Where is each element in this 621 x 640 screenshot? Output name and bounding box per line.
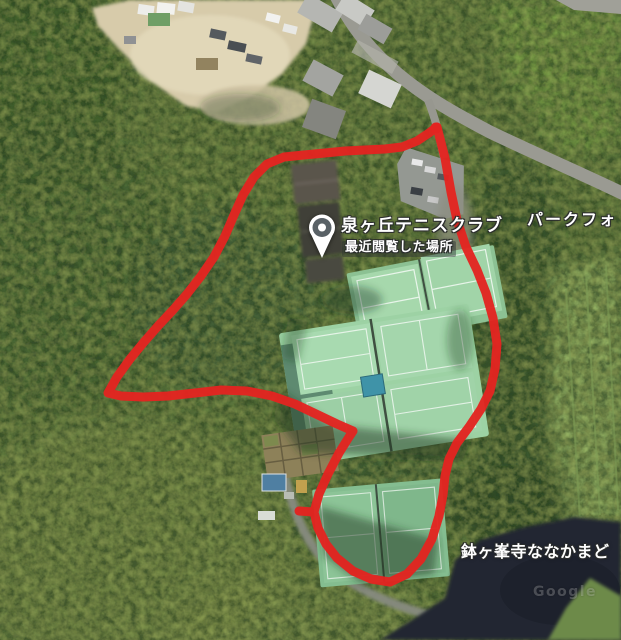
map-canvas[interactable]: 泉ヶ丘テニスクラブ 最近閲覧した場所 パークフォ 鉢ヶ峯寺ななかまど Googl… xyxy=(0,0,621,640)
place-status-label: 最近閲覧した場所 xyxy=(342,241,456,257)
place-name-label[interactable]: 泉ヶ丘テニスクラブ xyxy=(341,217,503,237)
area-label-temple[interactable]: 鉢ヶ峯寺ななかまど xyxy=(461,543,610,561)
google-watermark: Google xyxy=(533,584,597,600)
area-label-park[interactable]: パークフォ xyxy=(527,211,617,229)
place-pin-icon[interactable] xyxy=(304,213,340,259)
